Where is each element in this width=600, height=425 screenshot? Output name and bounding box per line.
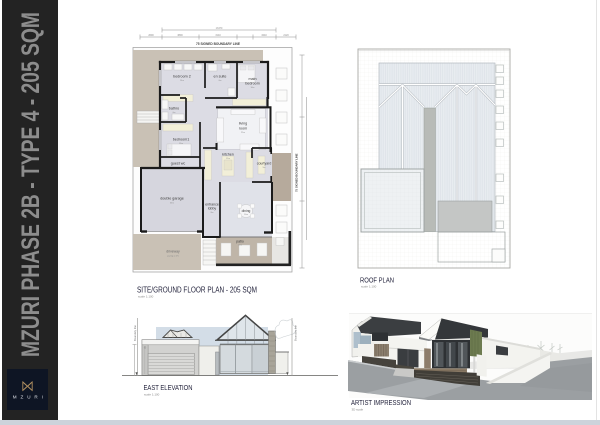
svg-text:paving at 5%: paving at 5% <box>167 255 179 258</box>
svg-text:3440: 3440 <box>261 34 267 37</box>
svg-text:Boundary line: Boundary line <box>133 325 137 341</box>
svg-text:main: main <box>249 77 257 81</box>
svg-text:2690: 2690 <box>148 34 154 37</box>
svg-text:10m: 10m <box>244 214 248 216</box>
svg-text:3D scale: 3D scale <box>352 408 364 412</box>
svg-text:scale 1:100: scale 1:100 <box>138 295 154 299</box>
svg-text:Boundary line: Boundary line <box>294 325 298 341</box>
svg-text:8m: 8m <box>211 212 214 214</box>
svg-text:kitchen: kitchen <box>222 153 234 157</box>
svg-text:36m: 36m <box>170 203 174 205</box>
svg-text:14m: 14m <box>180 80 184 82</box>
svg-text:13m: 13m <box>179 143 183 145</box>
svg-text:2120: 2120 <box>283 34 289 37</box>
svg-text:double garage: double garage <box>160 197 184 201</box>
svg-text:bedroom1: bedroom1 <box>173 138 190 142</box>
svg-text:room: room <box>239 127 247 131</box>
svg-text:en suite: en suite <box>214 75 227 79</box>
svg-text:dining: dining <box>242 209 251 213</box>
svg-text:scale 1:100: scale 1:100 <box>361 285 377 289</box>
svg-text:25m: 25m <box>241 132 245 134</box>
svg-text:3140: 3140 <box>215 34 221 37</box>
svg-text:living: living <box>239 122 247 126</box>
svg-text:75 SIGNED BOUNDARY LINE: 75 SIGNED BOUNDARY LINE <box>196 42 240 46</box>
svg-text:6m: 6m <box>173 112 176 114</box>
svg-text:3890: 3890 <box>177 34 183 37</box>
svg-text:guest wc: guest wc <box>171 162 186 166</box>
svg-text:12m: 12m <box>226 158 230 160</box>
svg-text:6m: 6m <box>219 80 222 82</box>
svg-text:courtyard: courtyard <box>257 162 272 166</box>
svg-text:patio: patio <box>236 240 244 244</box>
svg-text:16m: 16m <box>238 245 242 247</box>
svg-text:bedroom 2: bedroom 2 <box>173 75 191 79</box>
svg-text:SITE/GROUND FLOOR PLAN - 205 S: SITE/GROUND FLOOR PLAN - 205 SQM <box>137 286 257 295</box>
svg-text:bathro: bathro <box>169 107 179 111</box>
svg-text:scale 1:100: scale 1:100 <box>144 393 160 397</box>
svg-text:75 SIGNED BOUNDARY LINE: 75 SIGNED BOUNDARY LINE <box>295 153 299 192</box>
svg-text:ARTIST IMPRESSION: ARTIST IMPRESSION <box>351 398 411 407</box>
svg-text:13470: 13470 <box>216 27 223 30</box>
svg-text:EAST ELEVATION: EAST ELEVATION <box>144 383 193 392</box>
svg-text:driveway: driveway <box>166 250 180 254</box>
svg-text:ROOF PLAN: ROOF PLAN <box>360 276 394 285</box>
svg-text:bedroom: bedroom <box>245 82 260 86</box>
svg-text:9m: 9m <box>263 167 266 169</box>
svg-text:lobby: lobby <box>208 207 217 211</box>
svg-text:16m: 16m <box>251 87 255 89</box>
